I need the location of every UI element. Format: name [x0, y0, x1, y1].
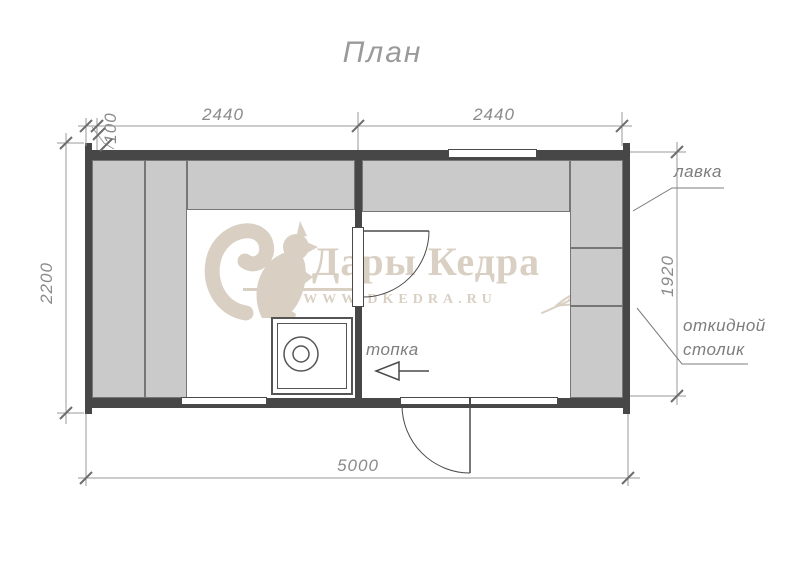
bench-right-column-bottom	[570, 306, 623, 398]
window-top	[448, 149, 537, 158]
dim-left-room-width: 2440	[183, 105, 263, 125]
door-frame-partition	[352, 227, 364, 307]
wall-right	[623, 143, 630, 414]
folding-table-panel	[570, 248, 623, 306]
bench-right-column-top	[570, 160, 623, 248]
door-opening-bottom	[400, 397, 470, 405]
wall-left	[85, 143, 92, 414]
bench-left-room-top	[187, 160, 355, 210]
page-title: План	[330, 36, 435, 70]
dim-right-room-width: 2440	[454, 105, 534, 125]
label-bench: лавка	[674, 162, 722, 182]
bench-left-wall-tier1	[92, 160, 145, 398]
label-folding-table-line1: откидной	[683, 316, 766, 336]
sidelight-bottom	[470, 397, 558, 405]
dim-right-inner-depth: 1920	[658, 246, 676, 306]
dim-wall-offset: 100	[101, 106, 119, 150]
stove-inner-frame	[277, 323, 347, 389]
window-bottom-left	[181, 397, 267, 405]
label-firebox: топка	[366, 340, 419, 360]
dim-total-width: 5000	[318, 456, 398, 476]
label-folding-table-line2: столик	[683, 340, 745, 360]
bench-left-wall-tier2	[145, 160, 187, 398]
bench-right-room-top	[362, 160, 570, 212]
squirrel-icon	[212, 221, 318, 320]
watermark-underline	[243, 288, 357, 291]
floor-plan-drawing: План Дары Кедра WWW.DKEDRA.RU	[0, 0, 800, 565]
dim-total-depth: 2200	[37, 253, 55, 313]
